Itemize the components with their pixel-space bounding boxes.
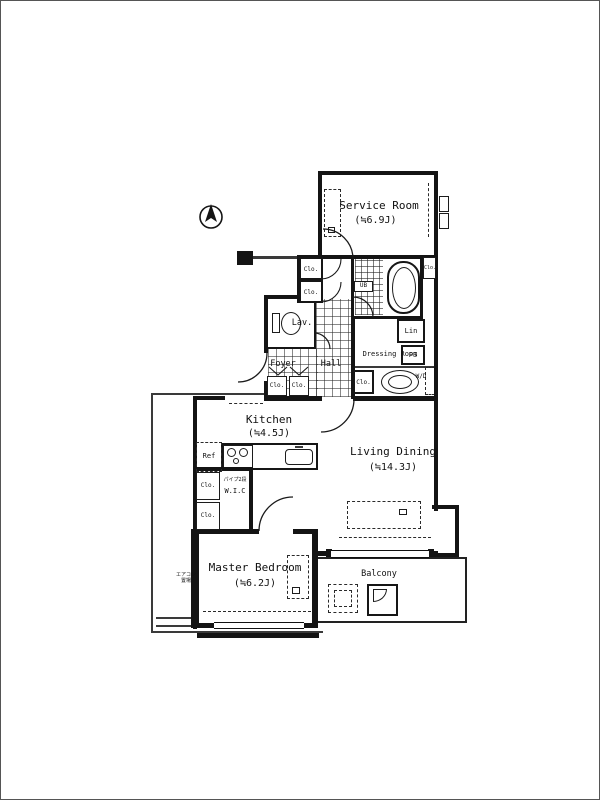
bath-door-arc <box>353 297 373 317</box>
folding-door-mark-left <box>269 367 287 375</box>
floor-plan-image: UB Clo. Lin PS Clo. W/D Clo. Clo. Lav. F… <box>0 0 600 800</box>
bedroom-door-arc <box>259 497 293 531</box>
closet-door-arc-lower <box>321 282 341 302</box>
livingdining-door-arc <box>321 399 354 432</box>
serviceroom-door-arc <box>323 229 353 259</box>
lavatory-door-arc <box>314 333 330 349</box>
entry-door-arc <box>238 353 267 382</box>
closet-door-arc-upper <box>321 259 341 279</box>
plan-linework <box>1 1 600 800</box>
folding-door-mark-right <box>290 367 308 375</box>
